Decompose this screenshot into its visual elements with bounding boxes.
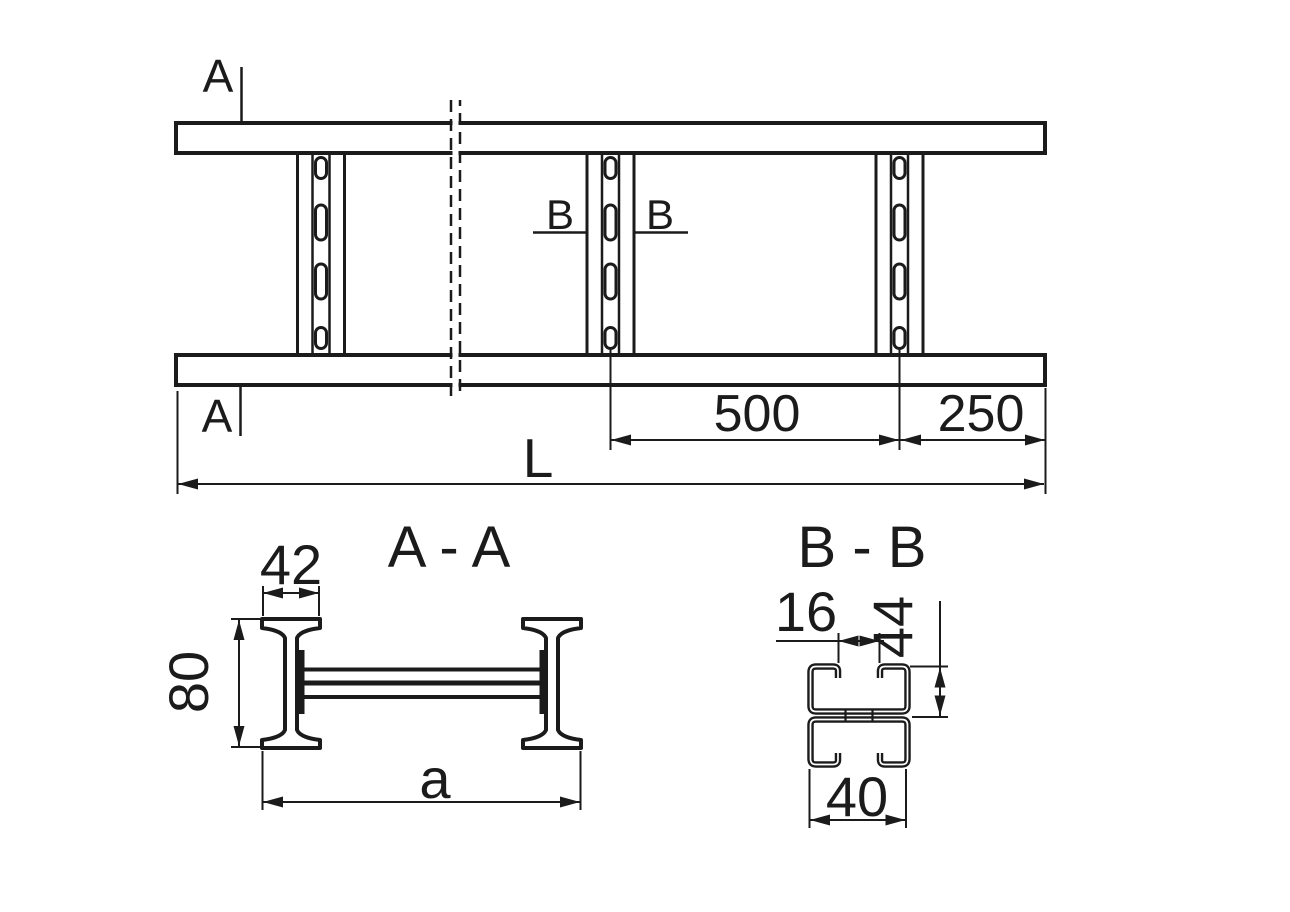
rung-slot-hole: [316, 205, 327, 240]
section-bb-title: B - B: [798, 515, 927, 580]
section-aa-title: A - A: [388, 515, 511, 580]
section-aa-view: A - A 42 80: [157, 515, 581, 810]
technical-drawing-page: A A B B 500 250: [0, 0, 1290, 912]
rung-3: [876, 151, 923, 357]
drawing-canvas: A A B B 500 250: [0, 0, 1290, 912]
section-marker-b-left: B: [546, 191, 574, 238]
rung-slot-hole: [894, 158, 905, 179]
rung-slot-hole: [605, 205, 616, 240]
dimension-a: a: [263, 747, 581, 810]
dimension-a-value: a: [419, 747, 451, 810]
rung-slot-hole: [605, 264, 616, 299]
arrowhead-left: [263, 797, 283, 808]
rung-profile-upper-channel-inner-line: [811, 667, 908, 712]
dimension-44-value: 44: [861, 596, 924, 658]
arrowhead-left: [901, 435, 921, 446]
rung-slot-hole: [605, 158, 616, 179]
rung-end-bracket-left: [297, 650, 305, 714]
dimension-80-value: 80: [157, 651, 220, 713]
plan-view: A A B B 500 250: [176, 50, 1046, 494]
dimension-40: 40: [810, 765, 907, 828]
arrowhead-right: [1025, 435, 1045, 446]
arrowhead-right: [879, 435, 899, 446]
rung-slot-hole: [316, 328, 327, 349]
top-rail: [176, 123, 1045, 153]
arrowhead-right: [1024, 479, 1044, 490]
arrowhead-right: [886, 815, 906, 826]
arrowhead-left: [178, 479, 198, 490]
arrowhead-right: [560, 797, 580, 808]
rung-slot-hole: [605, 328, 616, 349]
rung-slot-hole: [894, 264, 905, 299]
rung-slot-hole: [316, 264, 327, 299]
rung-slot-hole: [894, 328, 905, 349]
rung-1: [298, 151, 345, 357]
dimension-16-value: 16: [775, 580, 837, 643]
dimension-500-value: 500: [714, 385, 801, 443]
section-marker-b-right: B: [646, 191, 674, 238]
arrowhead-left: [839, 636, 859, 647]
section-marker-a-bottom: A: [202, 390, 233, 442]
rung-slot-hole: [316, 158, 327, 179]
dimension-42: 42: [260, 533, 322, 616]
section-bb-view: B - B 16 44: [775, 515, 948, 828]
rung-slot-hole: [894, 205, 905, 240]
arrowhead-up: [234, 620, 245, 640]
arrowhead-left: [611, 435, 631, 446]
rung-profile-lower-channel: [811, 720, 908, 765]
dimension-250-value: 250: [938, 385, 1025, 443]
dimension-250: 250: [900, 385, 1046, 494]
section-marker-a-top: A: [203, 50, 234, 102]
break-gap: [453, 97, 459, 399]
arrowhead-down: [935, 696, 946, 716]
arrowhead-up: [935, 668, 946, 688]
dimension-length-value: L: [523, 427, 554, 489]
arrowhead-down: [234, 726, 245, 746]
dimension-80: 80: [157, 619, 260, 747]
dimension-42-value: 42: [260, 533, 322, 596]
rung-2: [587, 151, 634, 357]
dimension-40-value: 40: [826, 765, 888, 828]
rung-profile-lower-channel-inner-line: [811, 720, 908, 765]
rung-end-bracket-right: [540, 650, 548, 714]
rung-profile-upper-channel: [811, 667, 908, 712]
